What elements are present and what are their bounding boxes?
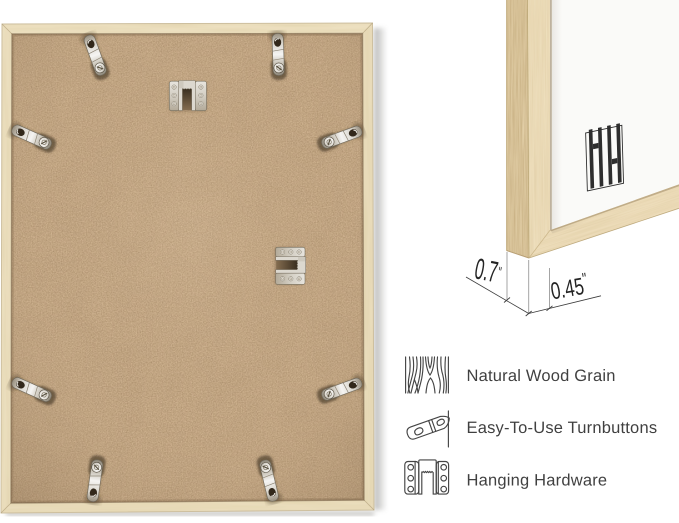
svg-text:Easy-To-Use Turnbuttons: Easy-To-Use Turnbuttons xyxy=(467,419,658,437)
svg-text:Hanging Hardware: Hanging Hardware xyxy=(467,472,608,490)
svg-text:Natural Wood Grain: Natural Wood Grain xyxy=(467,367,616,385)
svg-text:0.7": 0.7" xyxy=(472,252,504,289)
svg-text:0.45": 0.45" xyxy=(548,269,590,305)
